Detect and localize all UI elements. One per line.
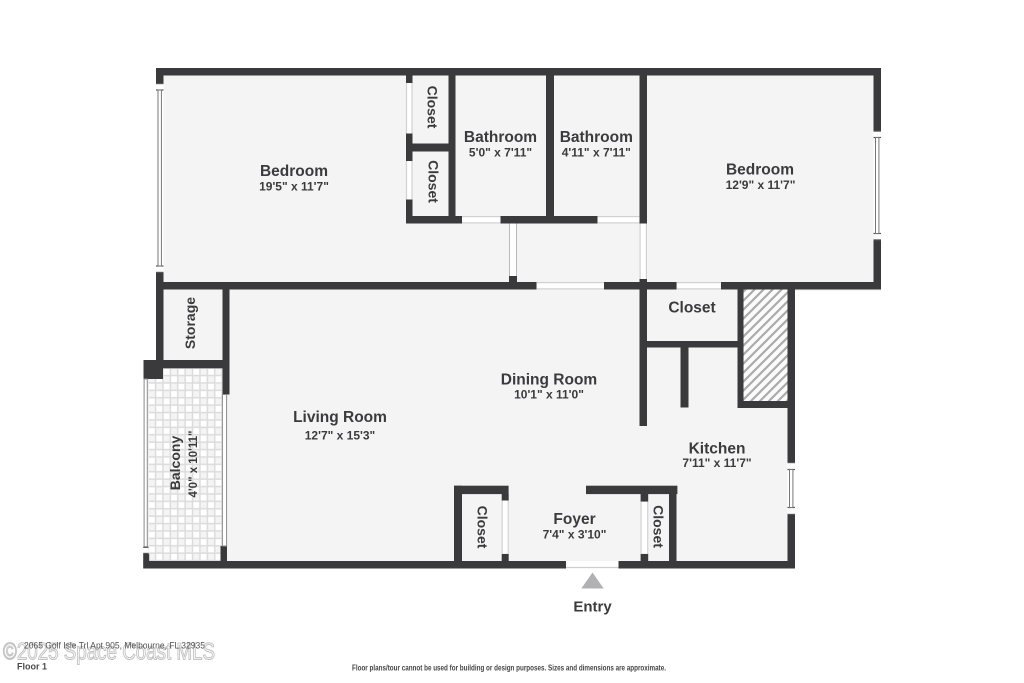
svg-text:Entry: Entry xyxy=(573,599,612,616)
svg-text:Closet: Closet xyxy=(668,300,715,317)
svg-text:Bathroom: Bathroom xyxy=(464,129,537,146)
svg-text:Closet: Closet xyxy=(426,160,442,203)
svg-text:Closet: Closet xyxy=(425,86,441,129)
svg-text:Storage: Storage xyxy=(182,297,198,349)
svg-text:Dining Room: Dining Room xyxy=(501,372,597,389)
svg-text:10'1" x 11'0": 10'1" x 11'0" xyxy=(514,388,584,402)
svg-text:7'11" x 11'7": 7'11" x 11'7" xyxy=(682,456,751,470)
svg-text:Floor plans/tour cannot be use: Floor plans/tour cannot be used for buil… xyxy=(352,664,666,673)
svg-text:Closet: Closet xyxy=(475,506,491,549)
svg-text:12'7" x 15'3": 12'7" x 15'3" xyxy=(305,429,375,443)
svg-text:12'9" x 11'7": 12'9" x 11'7" xyxy=(726,178,796,192)
svg-text:Foyer: Foyer xyxy=(553,511,595,528)
svg-text:Closet: Closet xyxy=(651,505,667,548)
svg-text:7'4" x 3'10": 7'4" x 3'10" xyxy=(543,528,607,542)
svg-text:Kitchen: Kitchen xyxy=(689,441,746,458)
svg-text:Balcony: Balcony xyxy=(167,436,183,491)
svg-text:Living Room: Living Room xyxy=(293,409,387,426)
svg-text:5'0" x 7'11": 5'0" x 7'11" xyxy=(469,146,532,160)
svg-text:4'11" x 7'11": 4'11" x 7'11" xyxy=(562,146,631,160)
svg-text:Bathroom: Bathroom xyxy=(560,129,633,146)
svg-text:Bedroom: Bedroom xyxy=(260,163,328,180)
svg-text:19'5" x 11'7": 19'5" x 11'7" xyxy=(259,180,329,194)
svg-text:Floor 1: Floor 1 xyxy=(17,662,47,672)
svg-text:Bedroom: Bedroom xyxy=(726,162,794,179)
svg-text:2065 Golf Isle Trl Apt 905, Me: 2065 Golf Isle Trl Apt 905, Melbourne, F… xyxy=(24,641,205,651)
svg-text:4'0" x 10'11": 4'0" x 10'11" xyxy=(188,431,200,498)
